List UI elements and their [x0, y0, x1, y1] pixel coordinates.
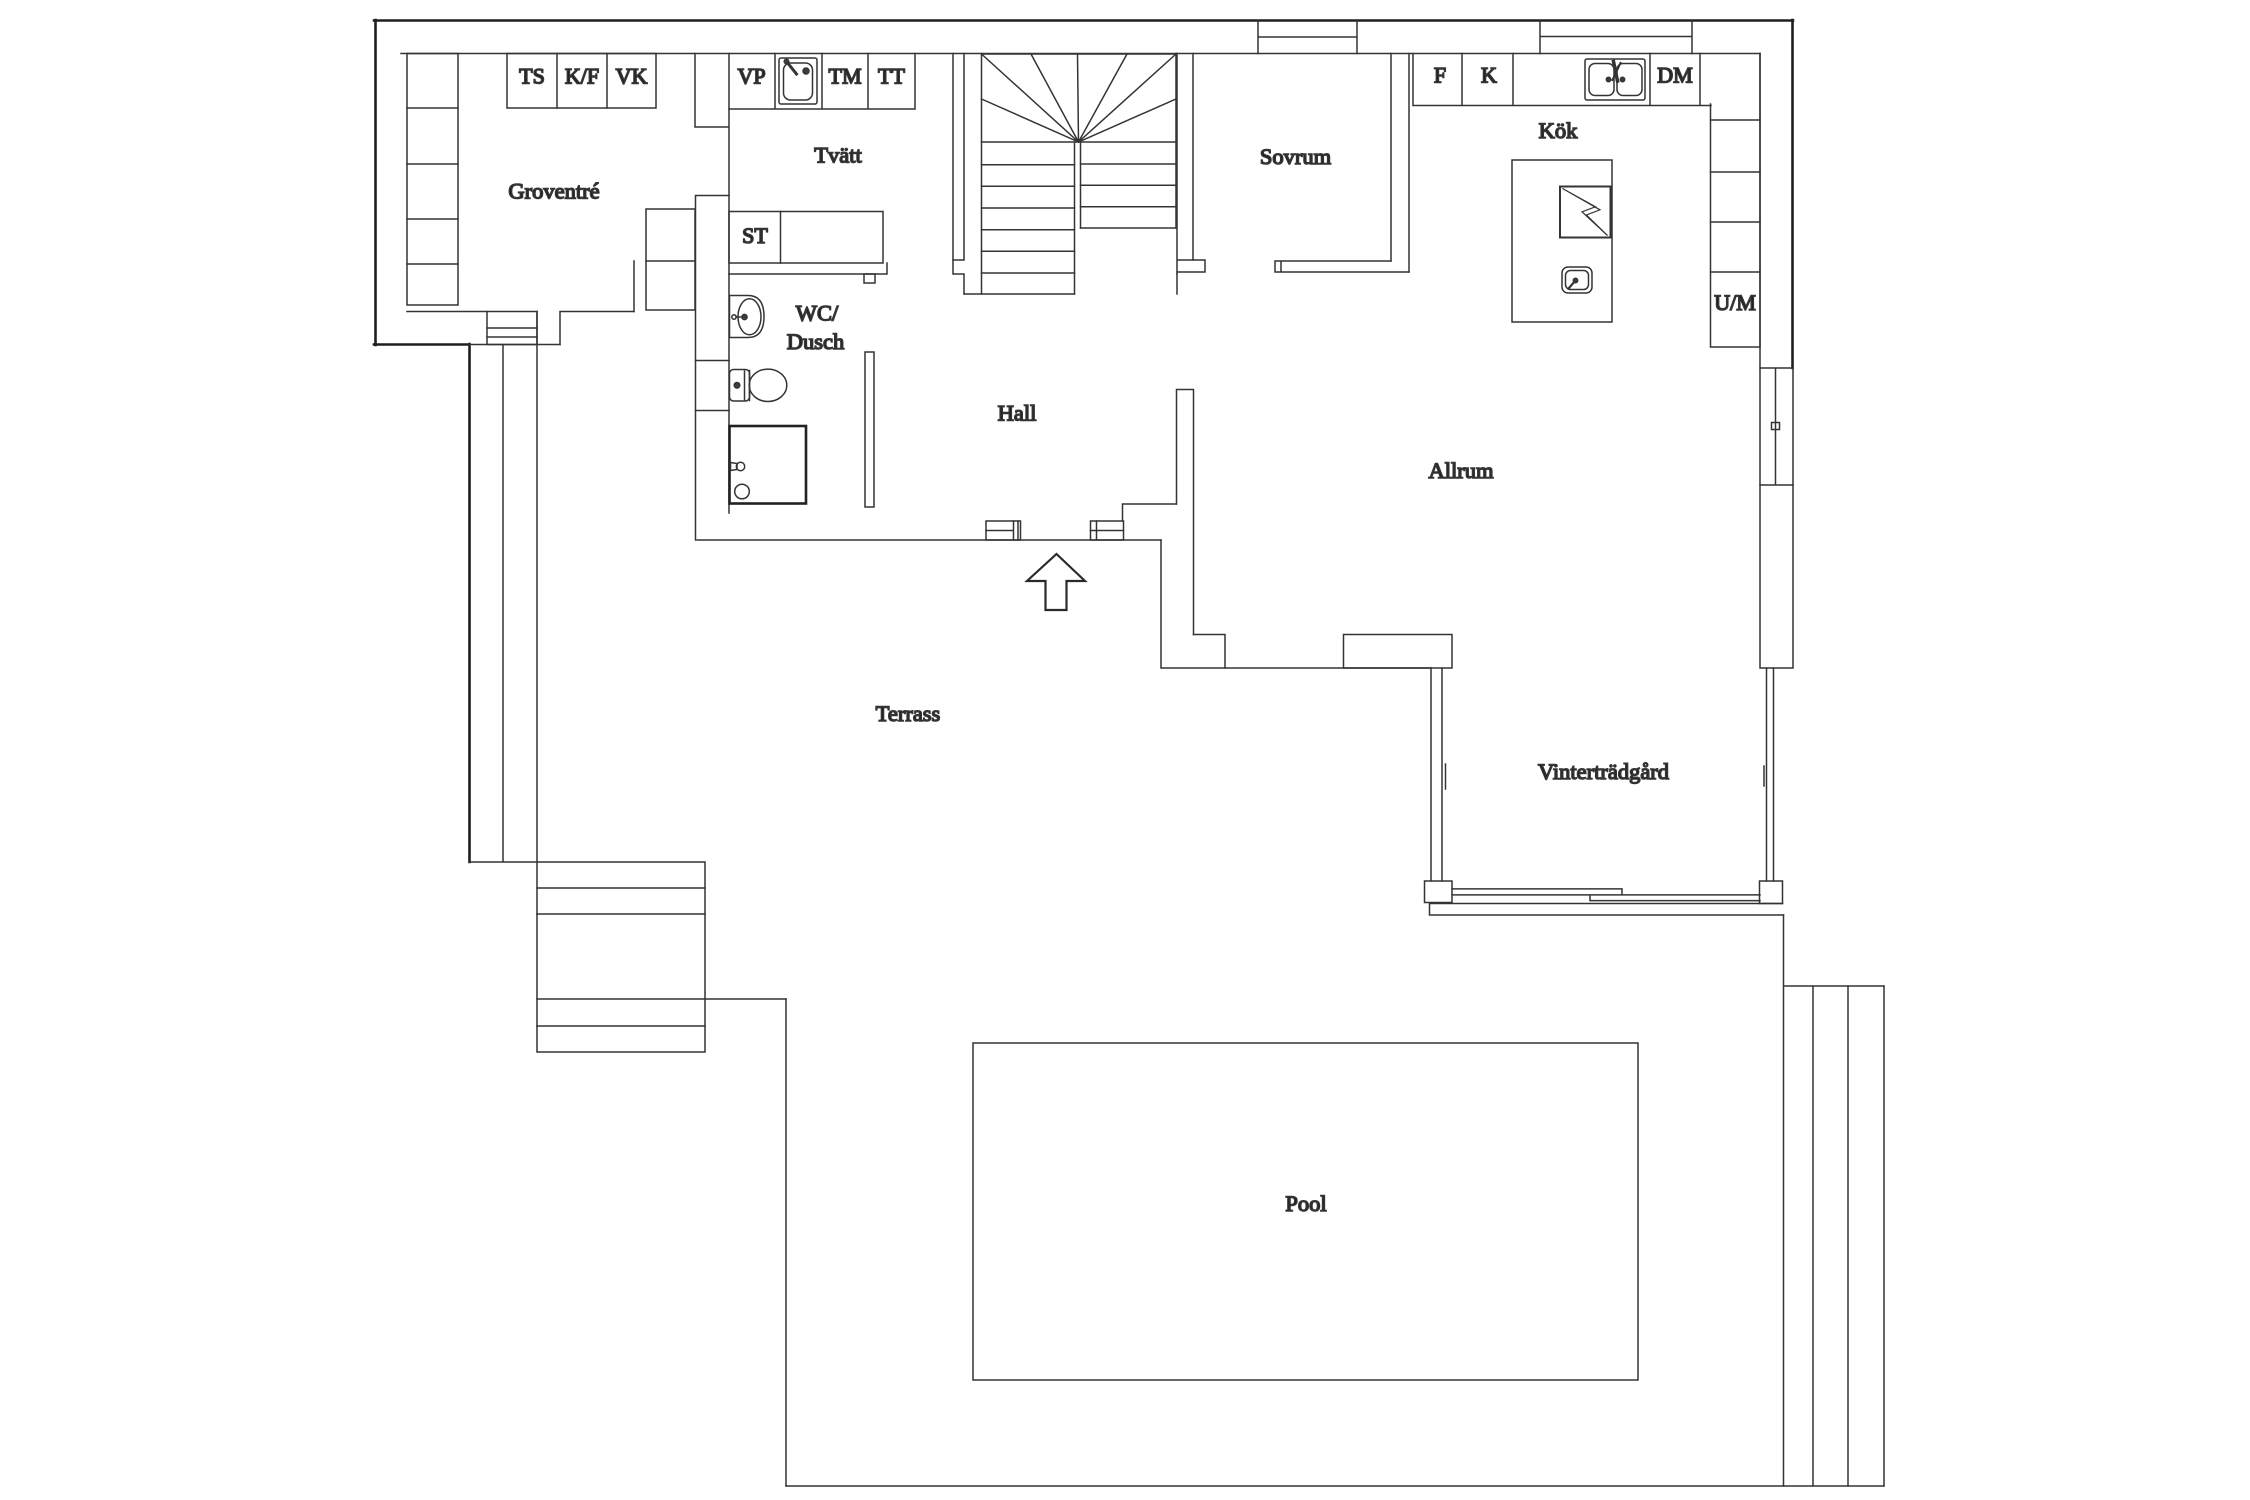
svg-text:K/F: K/F [565, 64, 599, 89]
svg-text:K: K [1481, 63, 1497, 88]
svg-text:TM: TM [829, 64, 862, 89]
svg-text:Groventré: Groventré [508, 179, 599, 204]
svg-text:Hall: Hall [998, 401, 1037, 426]
svg-text:WC/: WC/ [796, 301, 839, 326]
svg-text:Vinterträdgård: Vinterträdgård [1538, 759, 1669, 784]
svg-text:U/M: U/M [1714, 290, 1756, 315]
svg-text:F: F [1434, 63, 1446, 88]
svg-text:TT: TT [878, 64, 905, 89]
svg-text:VP: VP [737, 64, 765, 89]
svg-text:ST: ST [742, 223, 768, 248]
svg-text:Dusch: Dusch [787, 329, 845, 354]
svg-text:Allrum: Allrum [1429, 458, 1494, 483]
svg-text:Tvätt: Tvätt [814, 143, 862, 168]
svg-text:Sovrum: Sovrum [1260, 144, 1332, 169]
svg-text:Pool: Pool [1285, 1191, 1326, 1216]
svg-text:DM: DM [1657, 63, 1692, 88]
svg-text:VK: VK [616, 64, 648, 89]
svg-text:TS: TS [519, 64, 545, 89]
svg-text:Terrass: Terrass [876, 701, 941, 726]
svg-text:Kök: Kök [1539, 118, 1578, 143]
